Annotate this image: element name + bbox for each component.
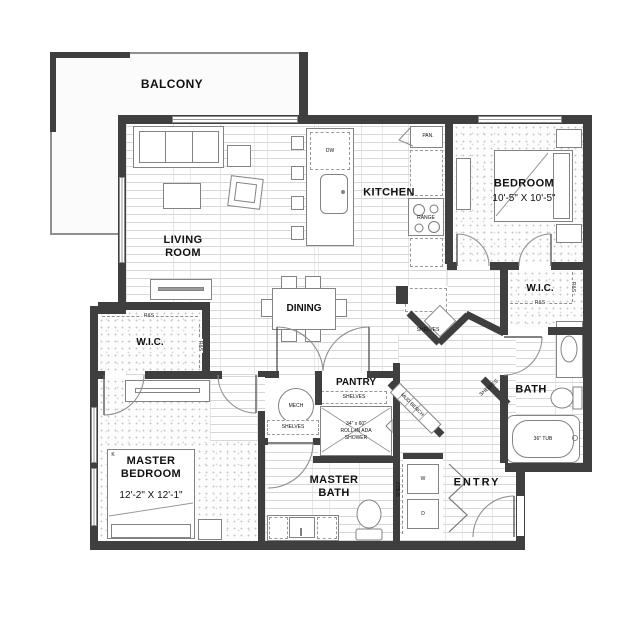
bed-pillows [111,524,191,538]
label-shelves-closet: SHELVES [417,327,440,333]
label-shower-size: 34" x 60" [346,421,366,427]
nightstand [556,224,582,243]
wall-wic-left [500,262,508,335]
balcony-wall-accent-left [50,52,56,132]
label-master-bedroom: MASTER BEDROOM [105,455,197,481]
hall-closet-shelves-box [405,288,447,312]
label-tub: 36" TUB [534,436,553,442]
bar-stool [291,196,304,210]
sofa-cushion-divider [192,131,193,163]
wall-wd-top [403,453,443,459]
sofa-cushions [139,131,219,163]
armchair-seat [234,182,257,203]
wall-bath-left [500,375,508,463]
dresser-slot [135,388,200,393]
label-rs: R&S [142,313,156,319]
label-shelves-pantry: SHELVES [343,394,366,400]
side-table [227,145,251,167]
master-vanity-cab [269,517,288,539]
label-master-bath: MASTER BATH [305,474,363,500]
window-master-1 [91,407,97,463]
wall-mech-pantry [315,371,322,405]
master-sink [289,517,315,538]
label-balcony: BALCONY [141,77,203,91]
wall-right [583,115,592,472]
wall-bedroom-bottom [551,262,592,270]
coffee-table [163,183,201,209]
wall-mbr-right [258,371,265,377]
balcony-wall-accent-top [50,52,130,58]
bar-stool [291,226,304,240]
window-master-2 [91,468,97,526]
wall-wic-bath [500,327,508,335]
master-vanity-cab [317,517,337,539]
nightstand [198,519,222,540]
window-living [172,116,298,123]
shelf-line [402,464,403,534]
wall-mwic-top [98,302,210,310]
wall-bedroom-bottom [447,262,457,270]
nightstand [556,129,582,148]
wall-kitchen-bedroom [445,124,453,264]
label-master-bedroom-dims: 12'-2" X 12'-1" [119,490,182,502]
wall-wic-bath [548,327,592,335]
dresser [456,158,471,210]
label-rs: R&S [533,300,547,306]
kitchen-sink [320,174,348,214]
label-entry: ENTRY [454,476,501,489]
media-console-slot [158,287,204,291]
wall-bottom [90,541,525,550]
label-kitchen: KITCHEN [363,186,415,199]
label-shelf: SHELF [396,481,402,497]
wall-hall-chunk [396,286,408,304]
label-dw: DW [326,148,334,154]
floor-hall [447,264,500,335]
label-bath: BATH [515,383,546,396]
label-dryer: D [421,511,425,517]
dining-chair [335,299,347,317]
label-rs: R&S [570,280,576,294]
label-master-wic: W.I.C. [136,337,163,349]
label-shelves-linen: SHELVES [282,424,305,430]
wall-mbath-top [313,438,320,445]
bed-pillows [553,153,570,219]
label-pantry: PANTRY [336,377,376,389]
label-range: RANGE [417,215,435,221]
bar-stool [291,136,304,150]
wall-pantry-top [265,371,279,378]
window-bedroom [478,116,562,123]
label-bedroom-wic: W.I.C. [526,283,553,295]
label-pan: PAN. [422,133,433,139]
sofa-cushion-divider [165,131,166,163]
label-shower-type: ROLL-IN ADA [340,428,371,434]
wall-mbr-right [258,411,265,541]
dining-chair [305,329,321,342]
entry-door-opening [517,496,524,536]
wall-mbr-top [98,371,105,379]
label-bedroom: BEDROOM [494,177,554,190]
floor-plan: BALCONY LIVING ROOM KITCHEN DINING BEDRO… [0,0,640,640]
dining-chair [281,329,297,342]
wall-mwic-right [202,302,210,379]
counter-box [410,238,443,267]
label-rs: R&S [197,339,203,353]
label-shower-word: SHOWER [345,435,368,441]
wall-mbath-top [258,438,268,445]
bar-stool [291,166,304,180]
wall-shower-bottom [313,456,395,463]
refrigerator-box [410,150,443,196]
label-washer: W [421,476,426,482]
wall-pantry-entry [393,363,400,541]
wall-mbr-top [145,371,222,379]
floor-corridor [210,375,265,441]
balcony-wall-accent-right [299,52,308,117]
label-living-room: LIVING ROOM [152,234,214,260]
window-living-side [119,177,125,263]
label-bed-king: K [111,452,114,458]
label-bedroom-dims: 10'-5" X 10'-5" [492,193,555,205]
label-mech: MECH [289,403,304,409]
label-dining: DINING [287,303,322,315]
